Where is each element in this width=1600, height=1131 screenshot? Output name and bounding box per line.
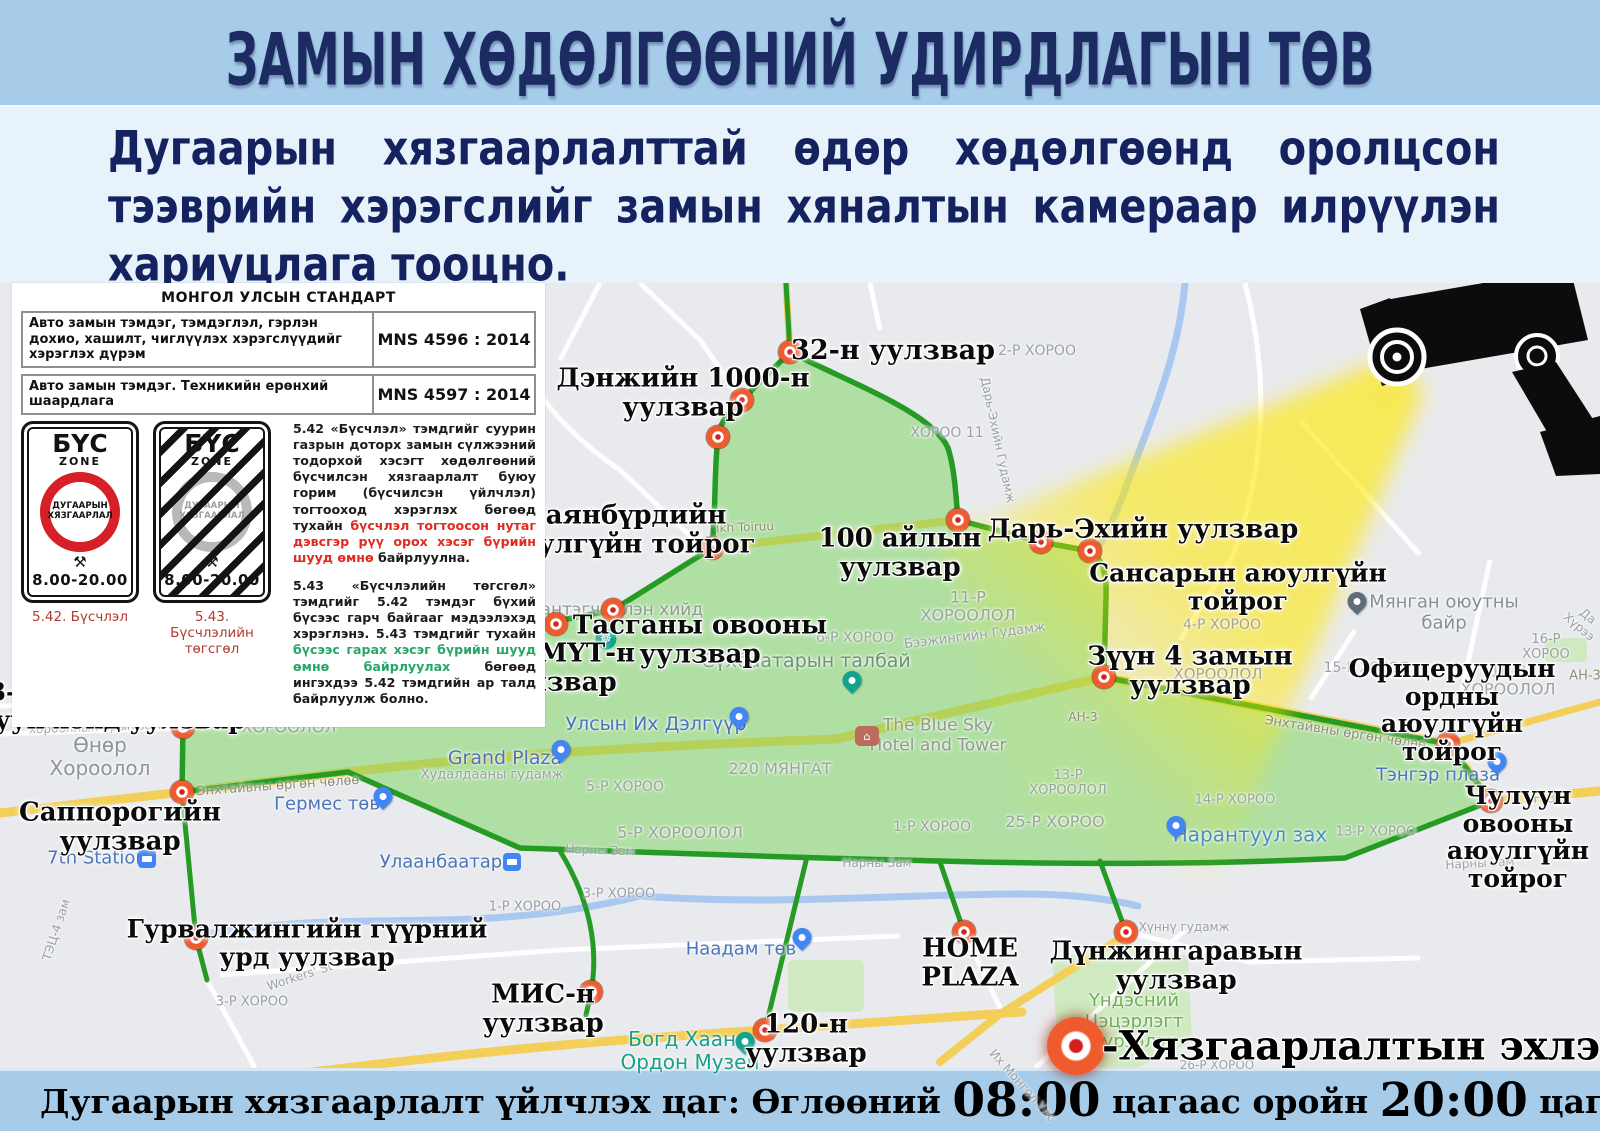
standard-row: Авто замын тэмдэг, тэмдэглэл, гэрлэн дох… (21, 311, 536, 368)
sign-zone-end: БҮС ZONE ДУГААРЫН ХЯЗГААРЛАЛ ⚒ 8.00-20.0… (153, 421, 271, 603)
sign-caption-end: 5.43. Бүсчлэлийн төгсгөл (153, 609, 271, 657)
hammers-icon: ⚒ (73, 554, 86, 571)
intro-band: Дугаарын хязгаарлалттай өдөр хөдөлгөөнд … (0, 107, 1600, 283)
standard-code: MNS 4597 : 2014 (372, 376, 534, 413)
sign-hours: 8.00-20.00 (32, 571, 128, 589)
circle-text: ХЯЗГААРЛАЛ (47, 512, 112, 522)
sign-zone-word: ZONE (59, 456, 101, 468)
rule-body: байрлуулна. (374, 550, 470, 565)
standard-name: Авто замын тэмдэг. Техникийн ерөнхий шаа… (23, 376, 372, 413)
standard-name: Авто замын тэмдэг, тэмдэглэл, гэрлэн дох… (23, 313, 372, 366)
legend-label: -Хязгаарлалтын эхлэлийн цэг (1102, 1023, 1600, 1070)
footer-text: Дугаарын хязгаарлалт үйлчлэх цаг: Өглөөн… (40, 1082, 952, 1121)
header-banner: ЗАМЫН ХӨДӨЛГӨӨНИЙ УДИРДЛАГЫН ТӨВ (0, 0, 1600, 107)
signs-and-rules: БҮС ZONE ДУГААРЫН ХЯЗГААРЛАЛ ⚒ 8.00-20.0… (21, 421, 536, 719)
rule-body: тэмдгийг суурин газрын доторх замын сүлж… (293, 421, 536, 533)
rule-lead: 5.42 «Бүсчлэл» (293, 421, 407, 436)
restriction-start-marker-icon (1047, 1017, 1105, 1075)
no-entry-circle: ДУГААРЫН ХЯЗГААРЛАЛ (40, 472, 120, 552)
standard-row: Авто замын тэмдэг. Техникийн ерөнхий шаа… (21, 374, 536, 415)
rule-5-43: 5.43 «Бүсчлэлийн төгсгөл» тэмдгийг 5.42 … (293, 578, 536, 707)
page-title: ЗАМЫН ХӨДӨЛГӨӨНИЙ УДИРДЛАГЫН ТӨВ (64, 18, 1536, 102)
signs-column: БҮС ZONE ДУГААРЫН ХЯЗГААРЛАЛ ⚒ 8.00-20.0… (21, 421, 283, 719)
footer-banner: Дугаарын хязгаарлалт үйлчлэх цаг: Өглөөн… (0, 1068, 1600, 1131)
infographic-page: H☸⌂2-Р ХОРООХОРОО 1111-Р ХОРООЛОЛ6-Р ХОР… (0, 0, 1600, 1131)
footer-text: цаг (1528, 1082, 1600, 1121)
zone-end-stripes (159, 427, 265, 597)
footer-text: цагаас оройн (1101, 1082, 1380, 1121)
rules-column: 5.42 «Бүсчлэл» тэмдгийг суурин газрын до… (293, 421, 536, 719)
rule-body: тэмдгийг 5.42 тэмдэг бүхий бүсээс гарч б… (293, 594, 536, 641)
rule-5-42: 5.42 «Бүсчлэл» тэмдгийг суурин газрын до… (293, 421, 536, 566)
standard-code: MNS 4596 : 2014 (372, 313, 534, 366)
intro-text: Дугаарын хязгаарлалттай өдөр хөдөлгөөнд … (108, 121, 1500, 294)
sign-caption-start: 5.42. Бүсчлэл (21, 609, 139, 657)
standards-infobox: МОНГОЛ УЛСЫН СТАНДАРТ Авто замын тэмдэг,… (12, 283, 545, 727)
standards-title: МОНГОЛ УЛСЫН СТАНДАРТ (21, 290, 536, 306)
sign-bus-word: БҮС (52, 431, 108, 456)
rule-lead: 5.43 «Бүсчлэлийн төгсгөл» (293, 578, 536, 593)
sign-zone-start: БҮС ZONE ДУГААРЫН ХЯЗГААРЛАЛ ⚒ 8.00-20.0… (21, 421, 139, 603)
